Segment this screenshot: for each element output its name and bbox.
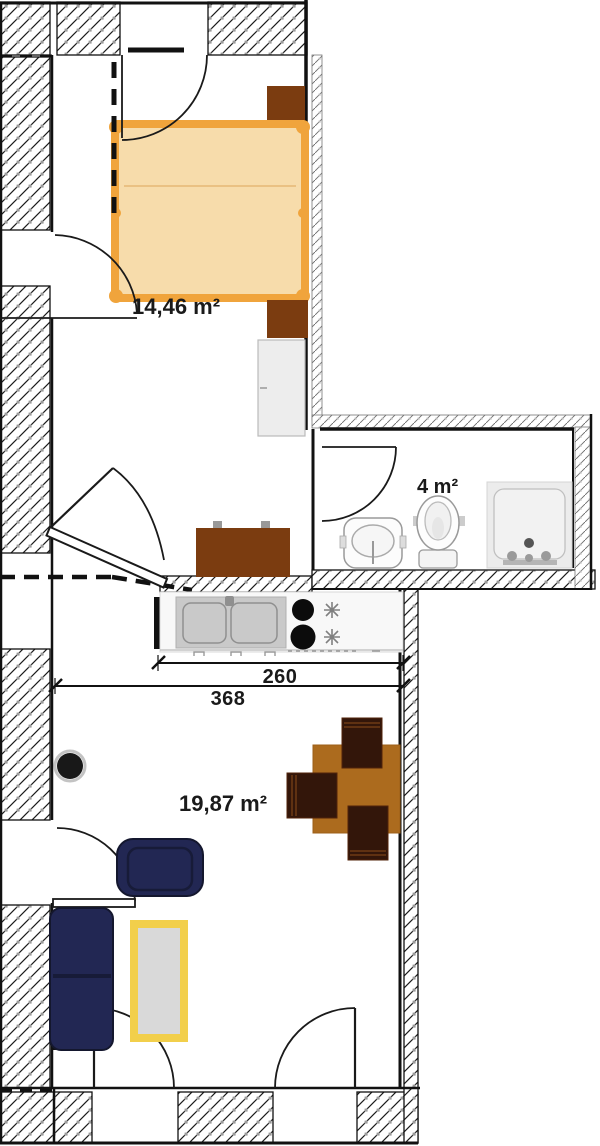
toilet — [413, 496, 465, 568]
cooktop-burner-1 — [292, 599, 314, 621]
living-room-area-label: 19,87 m² — [179, 791, 267, 817]
entry-door — [47, 468, 168, 588]
bathroom-door — [322, 447, 396, 521]
armchair — [117, 839, 203, 896]
dimension-260-label: 260 — [256, 666, 304, 689]
double-bed — [109, 120, 310, 303]
shower-tray — [487, 482, 572, 568]
bathroom-area-label: 4 m² — [417, 476, 458, 499]
nightstand-bottom — [267, 300, 308, 338]
nightstand-top — [267, 86, 305, 120]
bathroom-sink — [340, 518, 406, 568]
cooktop-burner-2 — [291, 625, 316, 650]
dining-chair-top — [342, 718, 382, 768]
drain-icon — [524, 538, 534, 548]
faucet-icon — [225, 596, 234, 606]
dining-chair-left — [287, 773, 337, 818]
balcony-door-right — [275, 1008, 355, 1088]
floor-plan-canvas — [0, 0, 600, 1146]
bedroom-area-label: 14,46 m² — [132, 294, 220, 320]
coffee-table — [134, 924, 184, 1038]
wood-stove — [55, 751, 85, 781]
kitchen-double-sink — [176, 596, 286, 648]
dining-chair-bottom — [348, 806, 388, 860]
hall-dresser — [196, 521, 290, 577]
wardrobe — [258, 340, 305, 436]
floor-plan: 14,46 m² 4 m² 19,87 m² 260 368 — [0, 0, 600, 1146]
dimension-368-label: 368 — [204, 688, 252, 711]
sofa — [50, 908, 113, 1050]
